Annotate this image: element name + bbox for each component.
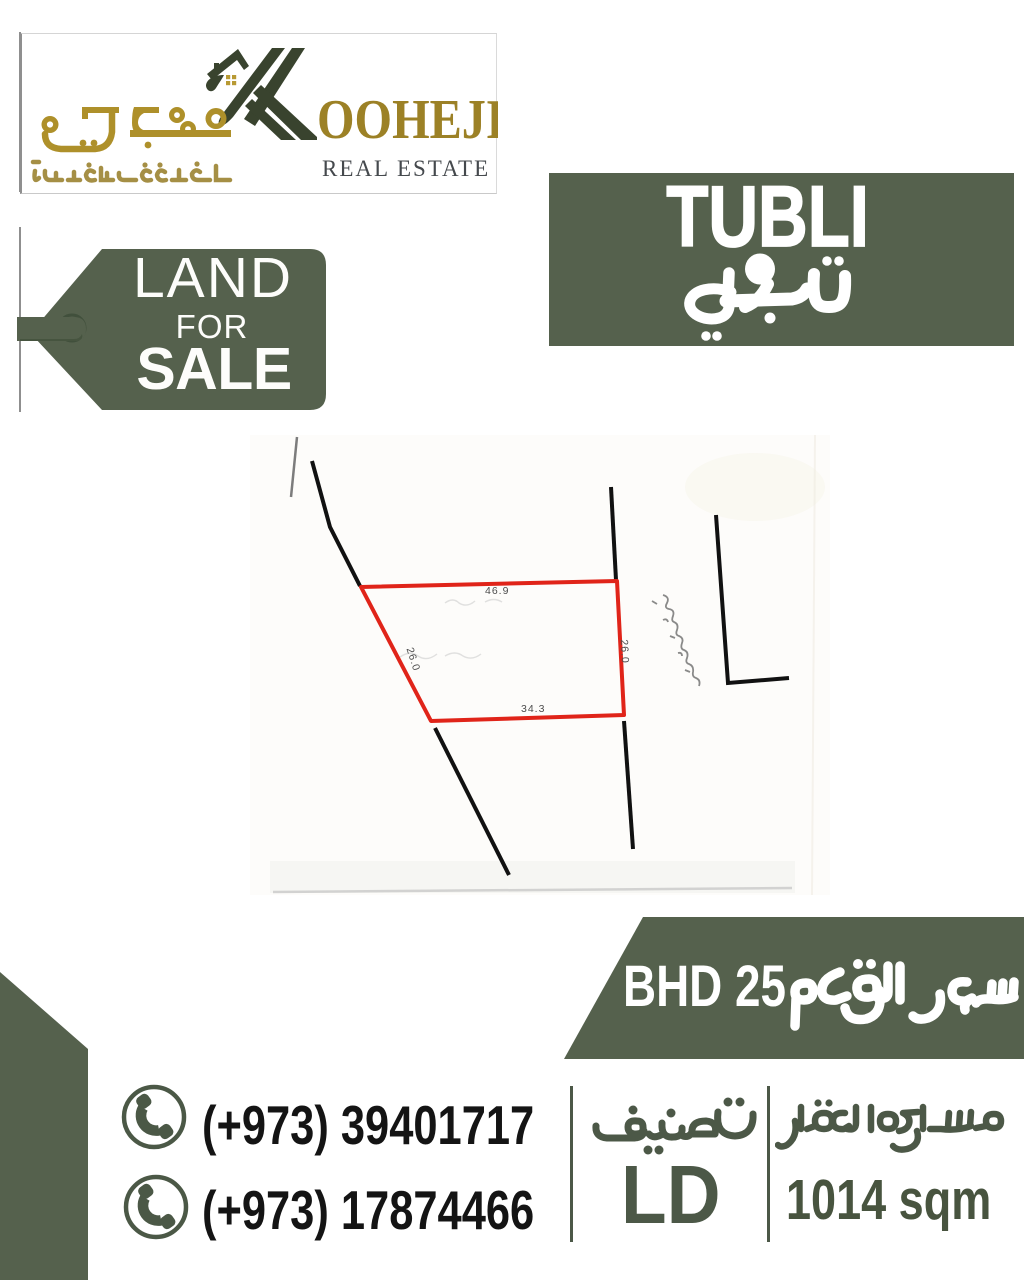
- svg-text:34.3: 34.3: [521, 703, 545, 715]
- svg-text:46.9: 46.9: [485, 585, 509, 597]
- svg-text:26.0: 26.0: [618, 639, 631, 664]
- svg-text:OOHEJI: OOHEJI: [317, 89, 498, 151]
- svg-text:REAL ESTATE: REAL ESTATE: [322, 156, 490, 181]
